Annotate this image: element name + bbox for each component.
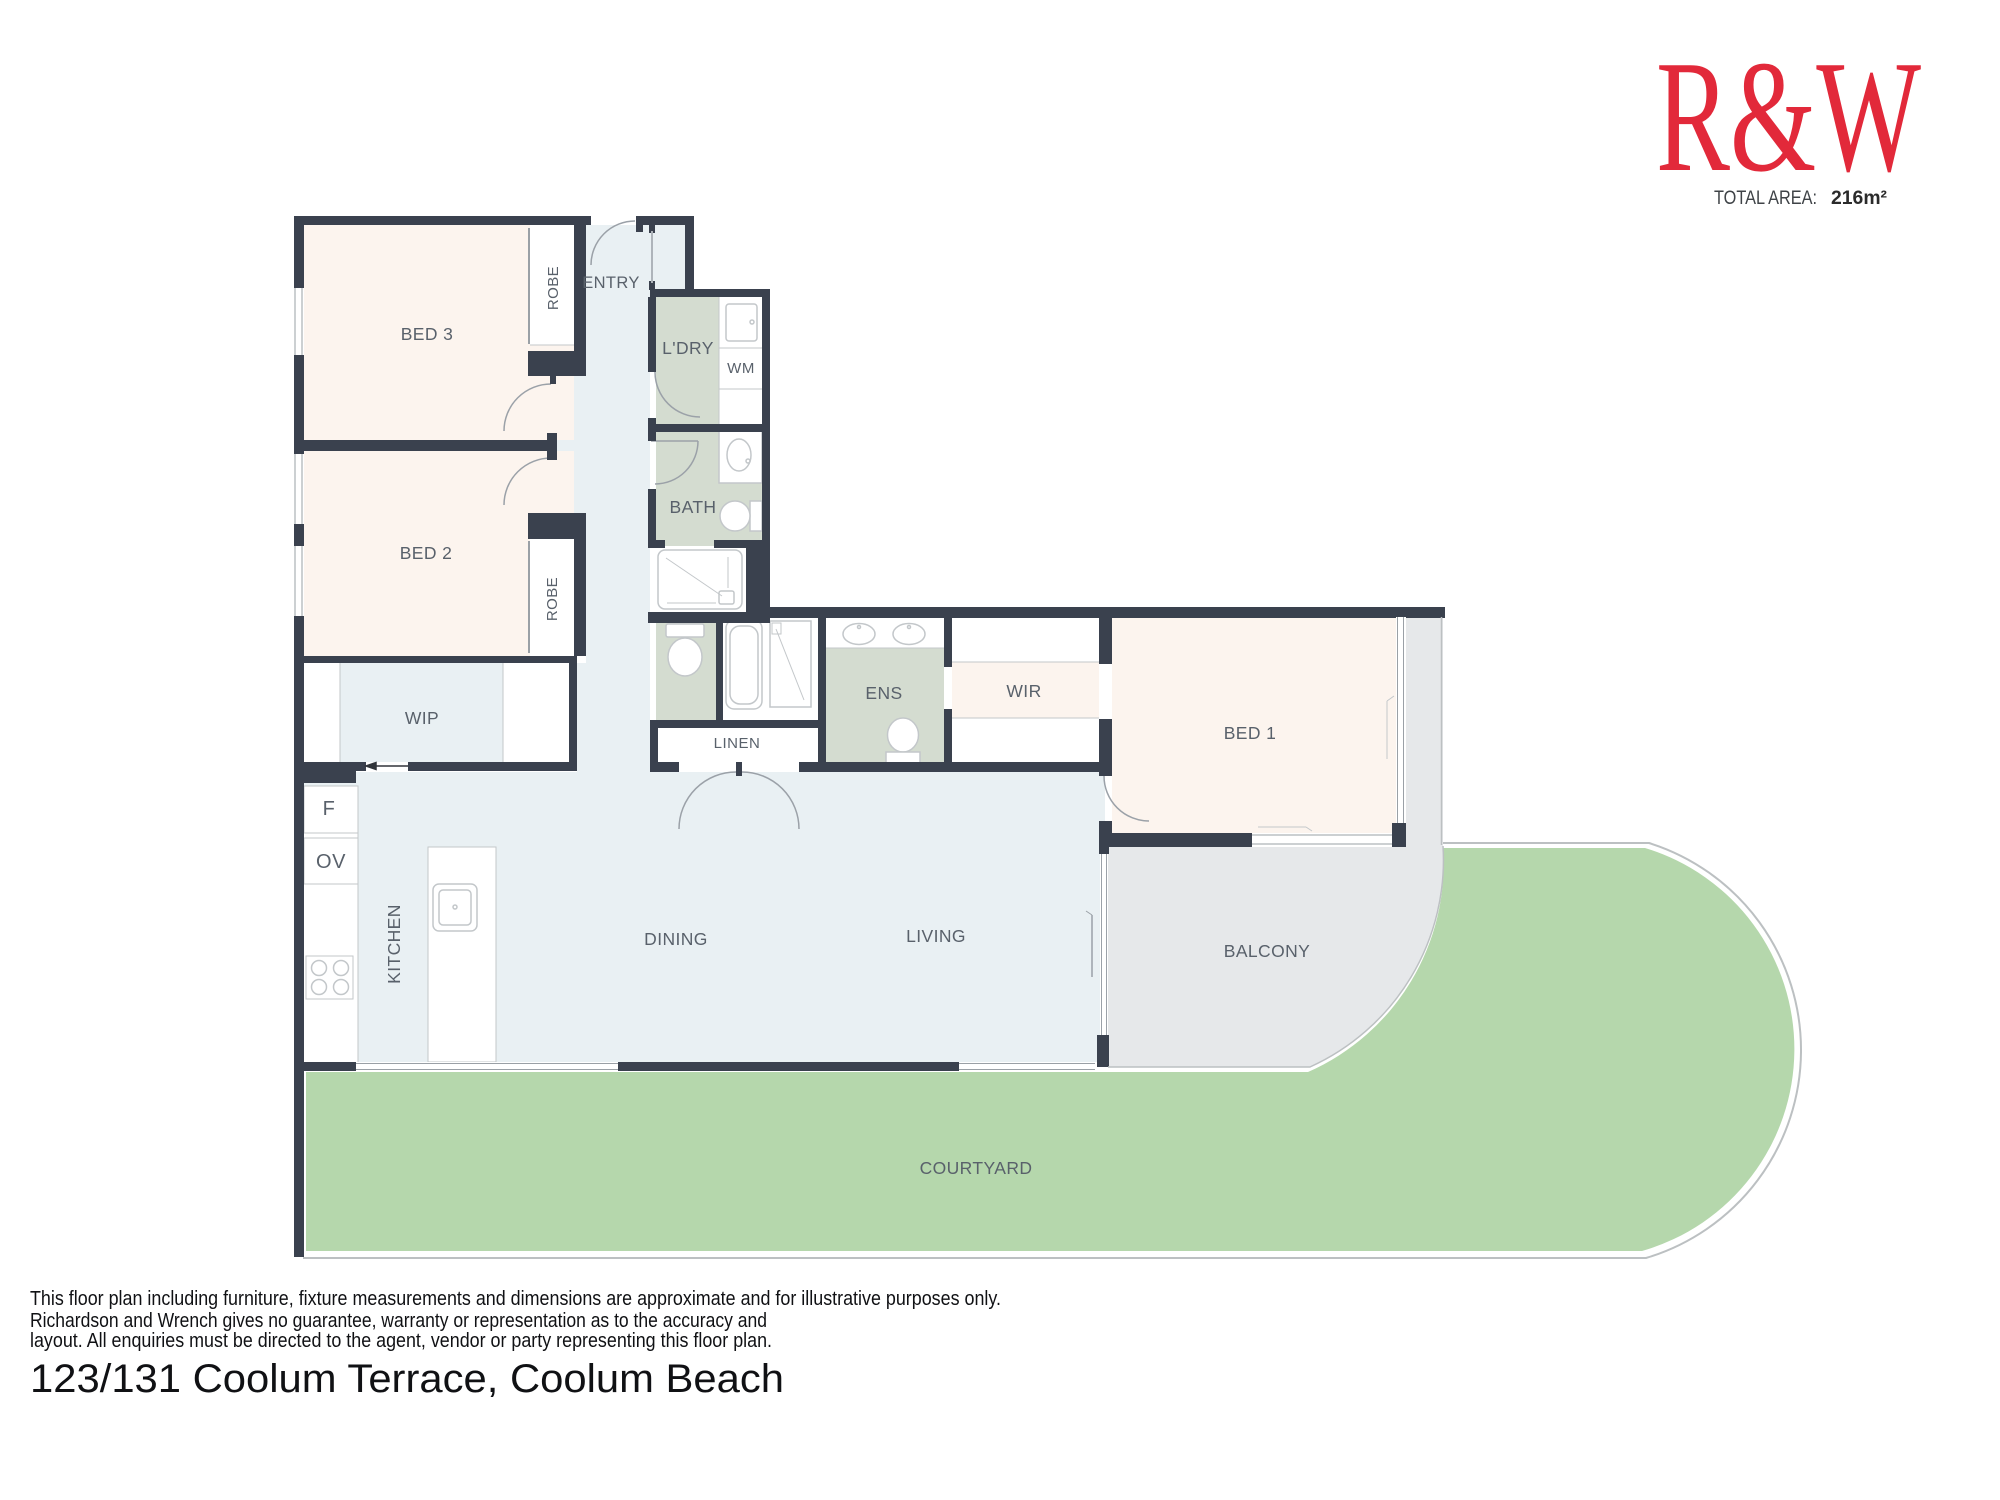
svg-text:R&W: R&W — [1656, 27, 1921, 205]
svg-text:L'DRY: L'DRY — [662, 338, 714, 358]
svg-text:ROBE: ROBE — [544, 577, 561, 621]
svg-text:LIVING: LIVING — [906, 926, 966, 946]
svg-text:COURTYARD: COURTYARD — [920, 1158, 1033, 1178]
svg-text:BED 2: BED 2 — [400, 543, 453, 563]
svg-text:ROBE: ROBE — [545, 266, 562, 310]
svg-text:BATH: BATH — [670, 497, 717, 517]
svg-text:LINEN: LINEN — [714, 735, 761, 752]
svg-text:F: F — [323, 798, 336, 820]
svg-text:This floor plan including furn: This floor plan including furniture, fix… — [30, 1288, 1001, 1310]
svg-text:123/131 Coolum Terrace, Coolum: 123/131 Coolum Terrace, Coolum Beach — [30, 1357, 784, 1401]
svg-text:ENTRY: ENTRY — [582, 274, 640, 292]
svg-text:Richardson and Wrench gives no: Richardson and Wrench gives no guarantee… — [30, 1310, 767, 1332]
svg-text:216m²: 216m² — [1831, 187, 1887, 209]
svg-text:BED 3: BED 3 — [401, 324, 454, 344]
svg-text:TOTAL AREA:: TOTAL AREA: — [1714, 188, 1817, 209]
svg-text:WIR: WIR — [1006, 681, 1041, 701]
svg-text:WM: WM — [727, 360, 755, 377]
svg-text:DINING: DINING — [644, 929, 708, 949]
svg-text:OV: OV — [316, 851, 346, 873]
svg-text:BED 1: BED 1 — [1224, 723, 1277, 743]
svg-text:layout. All enquiries must be: layout. All enquiries must be directed t… — [30, 1330, 772, 1352]
svg-text:KITCHEN: KITCHEN — [384, 904, 404, 984]
svg-text:BALCONY: BALCONY — [1224, 941, 1310, 961]
svg-text:WIP: WIP — [405, 708, 439, 728]
svg-text:ENS: ENS — [865, 683, 902, 703]
